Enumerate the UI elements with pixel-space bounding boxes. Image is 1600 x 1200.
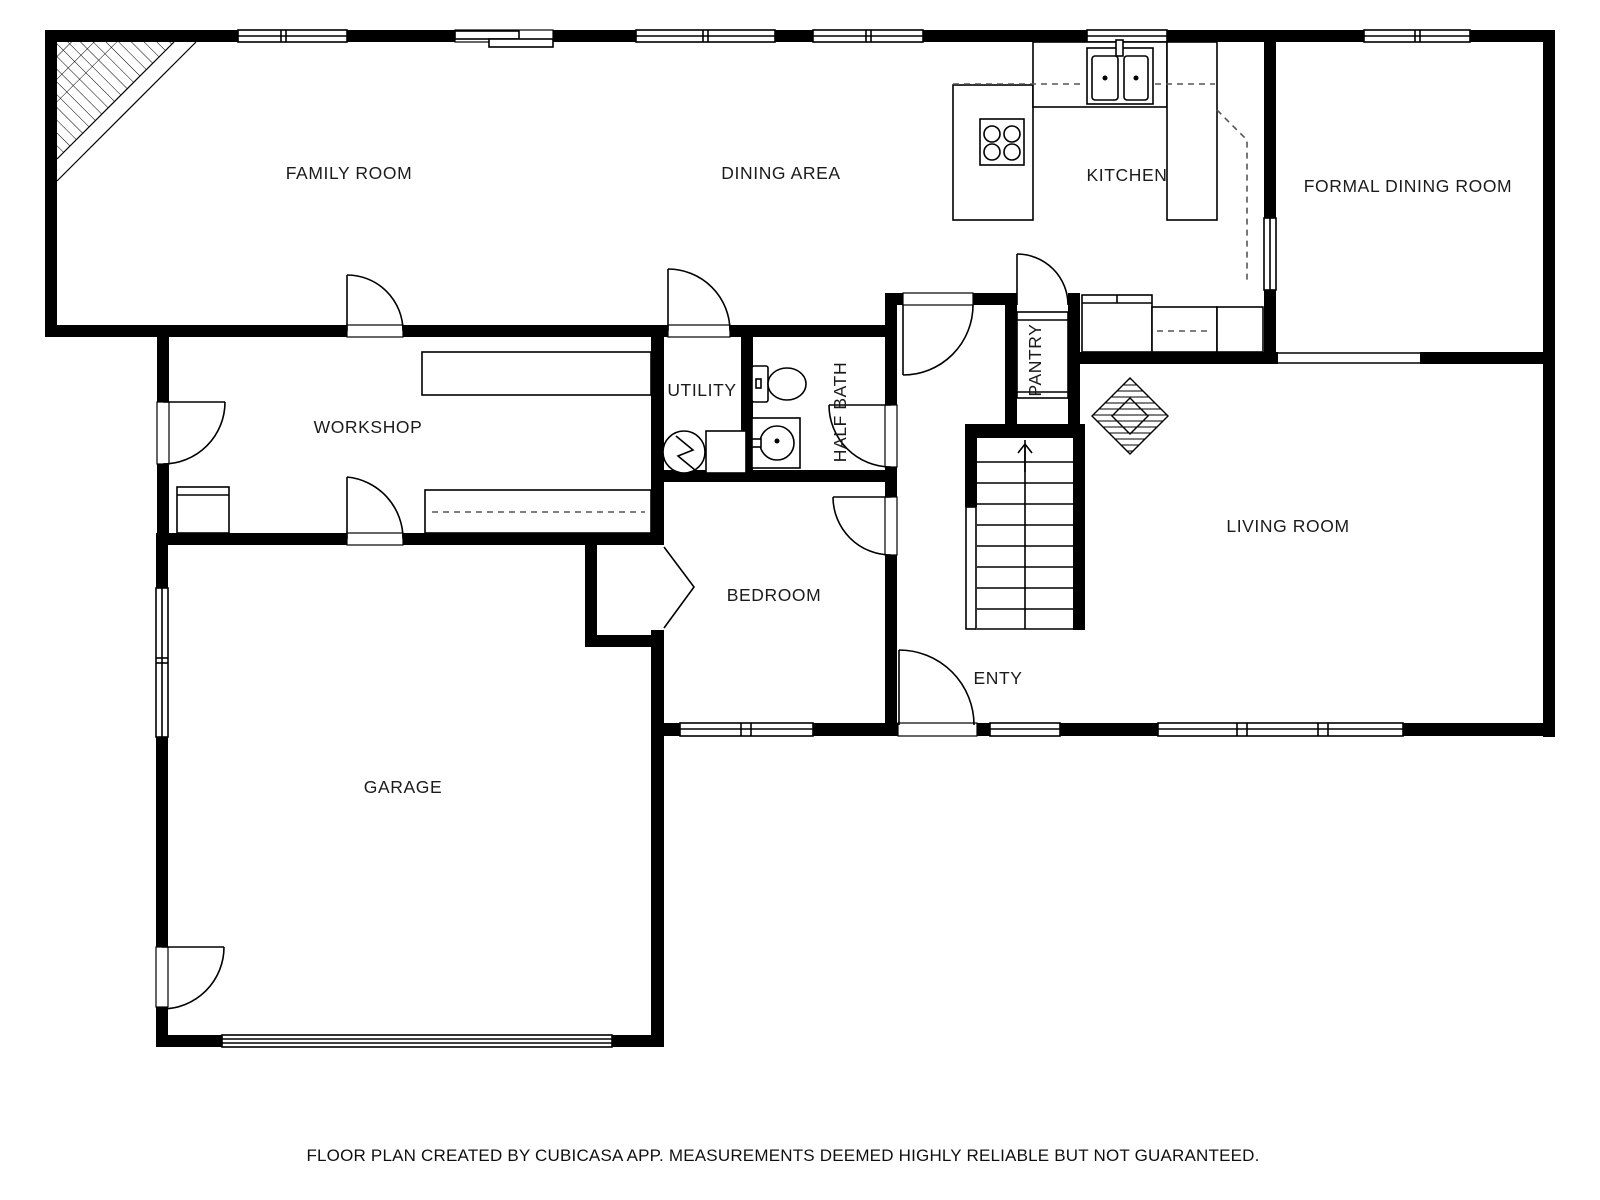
staircase-up bbox=[966, 438, 1073, 630]
room-label-entry: ENTY bbox=[973, 668, 1022, 688]
footer-disclaimer: FLOOR PLAN CREATED BY CUBICASA APP. MEAS… bbox=[0, 1146, 1566, 1166]
room-label-dining-area: DINING AREA bbox=[721, 163, 840, 183]
door-swing-utility-to-family bbox=[668, 269, 730, 331]
room-label-workshop: WORKSHOP bbox=[314, 417, 423, 437]
floor-plan-drawing: FAMILY ROOM DINING AREA KITCHEN FORMAL D… bbox=[0, 0, 1600, 1200]
workbench-top bbox=[422, 352, 651, 395]
stair-railing bbox=[966, 507, 976, 629]
room-label-formal-dining-room: FORMAL DINING ROOM bbox=[1304, 176, 1513, 196]
freezer-icon bbox=[177, 487, 229, 533]
utility-appliance bbox=[706, 431, 746, 473]
toilet-icon bbox=[752, 366, 806, 402]
room-label-living-room: LIVING ROOM bbox=[1226, 516, 1349, 536]
room-label-pantry: PANTRY bbox=[1025, 324, 1045, 397]
door-swing-hall-from-kitchen bbox=[903, 305, 973, 375]
room-label-family-room: FAMILY ROOM bbox=[286, 163, 413, 183]
water-heater-icon bbox=[663, 431, 705, 473]
door-swing-garage-to-workshop bbox=[347, 477, 403, 539]
corner-fireplace-icon bbox=[57, 42, 196, 181]
closet-bifold-door-icon bbox=[664, 547, 694, 628]
room-label-utility: UTILITY bbox=[667, 380, 736, 400]
floor-plan: FAMILY ROOM DINING AREA KITCHEN FORMAL D… bbox=[0, 0, 1600, 1200]
sliding-patio-door-icon bbox=[455, 30, 553, 47]
fireplace-icon bbox=[1092, 378, 1168, 454]
door-swing-workshop-side bbox=[163, 402, 225, 464]
door-swing-pantry bbox=[1017, 254, 1068, 305]
bathroom-sink-icon bbox=[752, 418, 800, 468]
cased-opening bbox=[1278, 353, 1420, 363]
door-swing-entry-front bbox=[899, 650, 974, 725]
room-label-kitchen: KITCHEN bbox=[1086, 165, 1167, 185]
refrigerator-icon bbox=[1082, 295, 1152, 352]
door-swing-bedroom bbox=[833, 497, 891, 555]
room-label-half-bath: HALF BATH bbox=[830, 362, 850, 462]
garage-door-icon bbox=[222, 1035, 612, 1047]
kitchen-se-counter bbox=[1152, 307, 1263, 352]
workbench-bottom bbox=[425, 490, 651, 533]
stove-icon bbox=[980, 119, 1024, 165]
kitchen-sink-icon bbox=[1087, 40, 1153, 104]
door-swing-workshop-to-family bbox=[347, 275, 403, 331]
room-label-garage: GARAGE bbox=[364, 777, 442, 797]
door-swing-garage-side bbox=[162, 947, 224, 1009]
room-label-bedroom: BEDROOM bbox=[727, 585, 822, 605]
